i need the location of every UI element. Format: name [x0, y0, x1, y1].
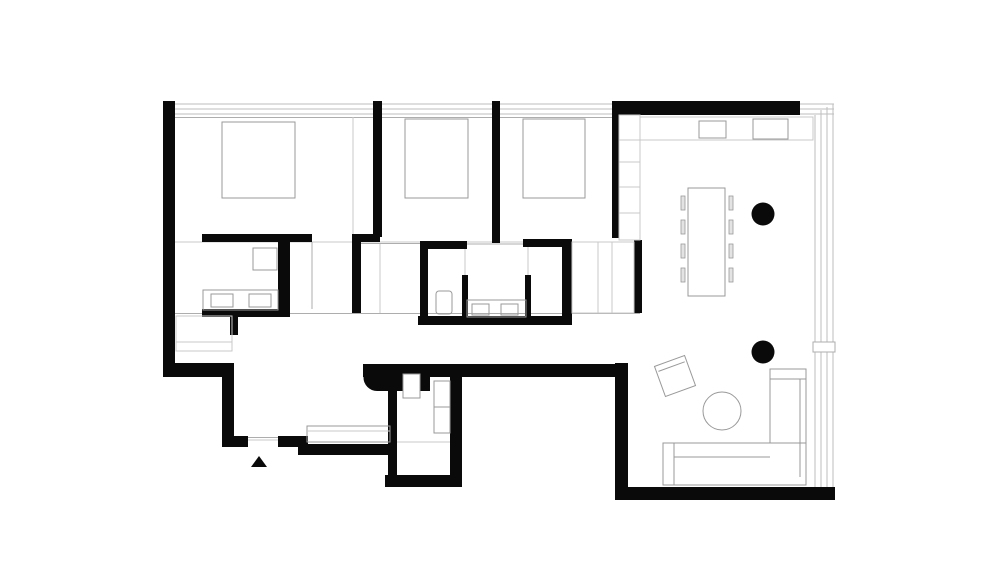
apartment-floor-plan	[0, 0, 1000, 573]
wall-living-west-lower	[615, 363, 628, 487]
coffee-table	[703, 392, 741, 430]
dining-chair-r4	[729, 268, 733, 282]
wall-bath2-right	[562, 239, 572, 324]
bedroom1-closet	[176, 316, 232, 351]
kitchen-cooktop	[753, 119, 788, 139]
floor-plan-canvas	[0, 0, 1000, 573]
wall-entry-south-left	[222, 436, 248, 447]
armchair	[654, 355, 695, 396]
bedroom3-closet	[572, 242, 634, 313]
dining-chair-l4	[681, 268, 685, 282]
entry-bench	[307, 426, 390, 442]
wc-washer-2	[434, 407, 450, 433]
living-tall-cabinet	[619, 115, 640, 240]
kitchen-sink	[699, 121, 726, 138]
wall-bottom-exterior	[615, 487, 835, 500]
wall-wc-right	[450, 377, 462, 487]
wall-bed1-bed2	[373, 101, 382, 237]
wall-left-exterior	[163, 101, 175, 377]
wall-top-right	[612, 101, 800, 115]
wall-wc-left	[388, 390, 397, 477]
dining-chair-r1	[729, 196, 733, 210]
column-2	[752, 341, 775, 364]
wall-bath1-mid	[278, 242, 290, 313]
wall-bed3-closet	[634, 240, 642, 313]
bed-2	[405, 119, 468, 198]
wall-bed2-bed3	[492, 101, 500, 243]
wall-entry-north	[163, 363, 234, 377]
wc-washer-1	[434, 381, 450, 407]
bath1-sink-1	[211, 294, 233, 307]
wall-bath2-arm-left	[420, 241, 467, 249]
bed-1	[222, 122, 295, 198]
wall-bath2-left	[420, 241, 428, 324]
sofa-seat	[663, 443, 806, 485]
wall-wc-nib	[419, 374, 430, 391]
column-1	[752, 203, 775, 226]
dining-chair-l2	[681, 220, 685, 234]
bed-3	[523, 119, 585, 198]
wc-toilet	[403, 374, 420, 398]
dining-chair-l3	[681, 244, 685, 258]
window-mullion-tick	[813, 342, 835, 352]
bath1-toilet	[253, 248, 277, 270]
dining-chair-r3	[729, 244, 733, 258]
entry-arrow	[251, 456, 267, 467]
dining-table	[688, 188, 725, 296]
wall-bath1-top	[202, 234, 312, 242]
wall-bath1-right	[352, 234, 361, 313]
wall-bath1-stub	[230, 317, 238, 335]
dining-chair-r2	[729, 220, 733, 234]
bath1-sink-2	[249, 294, 271, 307]
wall-bed3-living-upper	[612, 115, 619, 238]
dining-chair-l1	[681, 196, 685, 210]
wall-entry-step	[298, 444, 392, 455]
bath2-vanity	[467, 300, 526, 317]
bath2-toilet	[436, 291, 452, 314]
